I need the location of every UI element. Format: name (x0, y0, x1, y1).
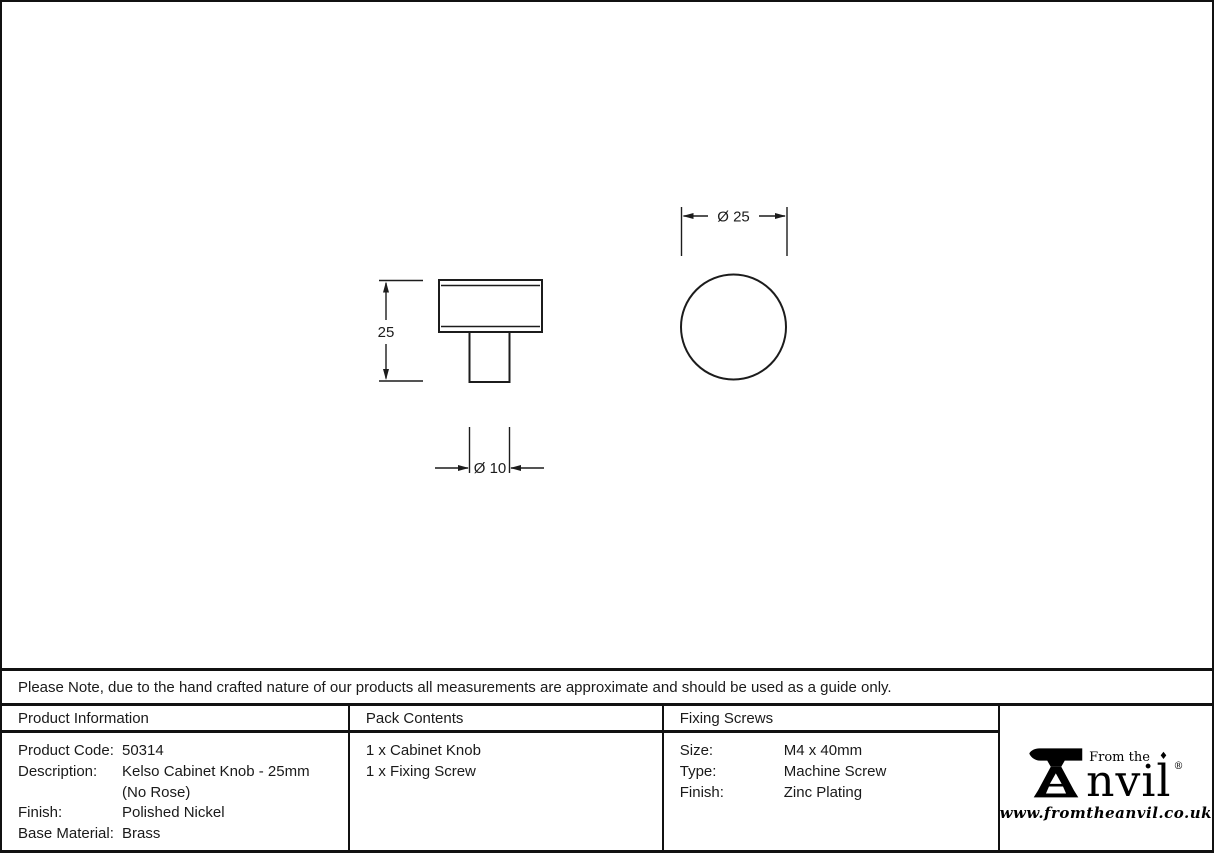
screw-finish-value: Zinc Plating (784, 783, 998, 804)
product-information-section: Product Information Product Code: 50314 … (2, 706, 350, 850)
anvil-icon (1028, 743, 1084, 801)
height-dim-label: 25 (378, 324, 395, 341)
table-row: Size: M4 x 40mm (680, 741, 998, 762)
product-code-value: 50314 (122, 741, 348, 762)
list-item: 1 x Fixing Screw (366, 762, 662, 783)
knob-stem-outline (470, 333, 510, 382)
base-material-label: Base Material: (18, 824, 122, 845)
table-row: Product Code: 50314 (18, 741, 348, 762)
logo-tagline: From the (1089, 750, 1150, 765)
spec-sheet-page: 25 Ø 10 (0, 0, 1214, 853)
finish-value: Polished Nickel (122, 803, 348, 824)
table-row: Finish: Zinc Plating (680, 783, 998, 804)
screw-finish-label: Finish: (680, 783, 784, 804)
knob-diameter-dimension: Ø 25 (682, 207, 788, 256)
table-row: Base Material: Brass (18, 824, 348, 845)
note-row: Please Note, due to the hand crafted nat… (2, 668, 1212, 703)
list-item: 1 x Cabinet Knob (366, 741, 662, 762)
knob-dim-arrow-right-icon (775, 213, 786, 219)
screw-size-value: M4 x 40mm (784, 741, 998, 762)
knob-dim-label: Ø 25 (717, 209, 750, 226)
pack-contents-header: Pack Contents (350, 706, 662, 733)
finish-label: Finish: (18, 803, 122, 824)
description-label: Description: (18, 762, 122, 783)
description-value-line2: (No Rose) (122, 783, 348, 804)
registered-trademark-icon: ® (1173, 761, 1183, 772)
height-dimension: 25 (378, 281, 423, 382)
table-row: Type: Machine Screw (680, 762, 998, 783)
pack-contents-body: 1 x Cabinet Knob 1 x Fixing Screw (350, 733, 662, 783)
fixing-screws-body: Size: M4 x 40mm Type: Machine Screw Fini… (664, 733, 998, 803)
note-text: Please Note, due to the hand crafted nat… (18, 679, 892, 696)
table-row: Finish: Polished Nickel (18, 803, 348, 824)
product-information-body: Product Code: 50314 Description: Kelso C… (2, 733, 348, 845)
height-dim-arrow-down-icon (383, 369, 389, 380)
height-dim-arrow-up-icon (383, 282, 389, 293)
screw-type-value: Machine Screw (784, 762, 998, 783)
screw-type-label: Type: (680, 762, 784, 783)
pack-contents-section: Pack Contents 1 x Cabinet Knob 1 x Fixin… (350, 706, 664, 850)
table-row: Description: Kelso Cabinet Knob - 25mm (18, 762, 348, 783)
brand-logo-cell: From the ♦ nvil ® www.fromtheanvil.co.uk (1000, 706, 1212, 850)
stem-dim-label: Ø 10 (474, 460, 507, 477)
knob-head-outline (439, 280, 542, 332)
spec-table: Product Information Product Code: 50314 … (2, 703, 1212, 850)
knob-top-view (681, 275, 786, 380)
description-value: Kelso Cabinet Knob - 25mm (122, 762, 348, 783)
screw-size-label: Size: (680, 741, 784, 762)
diamond-icon: ♦ (1159, 752, 1168, 762)
technical-drawing-svg: 25 Ø 10 (2, 2, 1212, 668)
product-code-label: Product Code: (18, 741, 122, 762)
knob-top-circle (681, 275, 786, 380)
technical-drawing-area: 25 Ø 10 (2, 2, 1212, 668)
stem-dim-arrow-left-icon (510, 465, 521, 471)
knob-dim-arrow-left-icon (683, 213, 694, 219)
stem-diameter-dimension: Ø 10 (435, 427, 544, 477)
from-the-anvil-logo: From the ♦ nvil ® www.fromtheanvil.co.uk (1000, 743, 1212, 822)
knob-side-view (439, 280, 542, 382)
fixing-screws-header: Fixing Screws (664, 706, 998, 733)
product-information-header: Product Information (2, 706, 348, 733)
table-row: (No Rose) (18, 783, 348, 804)
fixing-screws-section: Fixing Screws Size: M4 x 40mm Type: Mach… (664, 706, 1000, 850)
base-material-value: Brass (122, 824, 348, 845)
stem-dim-arrow-right-icon (458, 465, 469, 471)
